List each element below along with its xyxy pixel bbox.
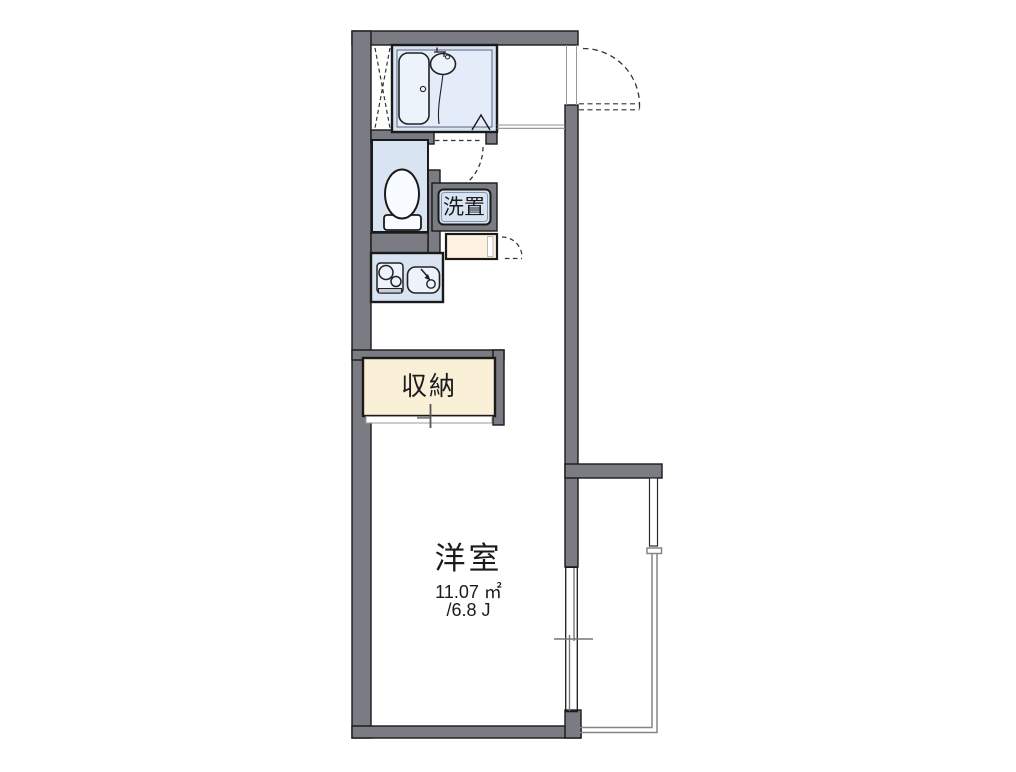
balcony-railing (579, 548, 662, 733)
storage-label: 収納 (363, 373, 495, 400)
wall-top (352, 31, 578, 45)
wall-toilet-bottom (371, 233, 428, 253)
toilet-icon (384, 170, 421, 231)
hall-counter (446, 234, 497, 259)
floor-plan-canvas: 洗置 収納 洋室 11.07 ㎡ /6.8 J (0, 0, 1016, 772)
western-room-label: 洋室 (396, 543, 541, 576)
wall-right-bottom (565, 710, 581, 738)
wall-bottom (352, 726, 581, 738)
kitchen-sink-icon (408, 267, 440, 293)
pipe-space-hatch (375, 48, 390, 128)
washer-place-label: 洗置 (436, 197, 492, 219)
sliding-window-icon (554, 567, 593, 712)
bathtub-icon (399, 53, 429, 124)
entrance-door-swing-icon (567, 45, 640, 110)
kitchen (371, 253, 443, 302)
toilet-room (372, 140, 428, 232)
cabinet-door-swing-icon (502, 237, 522, 259)
genkan-step (497, 125, 565, 128)
balcony-partition-panel (650, 478, 658, 546)
wall-right-main (565, 105, 578, 567)
unit-bath (392, 45, 497, 132)
wall-balcony-stub (565, 464, 662, 478)
floor-plan-drawing (0, 0, 1016, 772)
western-room-area-tatami: /6.8 J (396, 601, 541, 620)
stove-icon (377, 263, 403, 293)
balcony (579, 478, 662, 733)
